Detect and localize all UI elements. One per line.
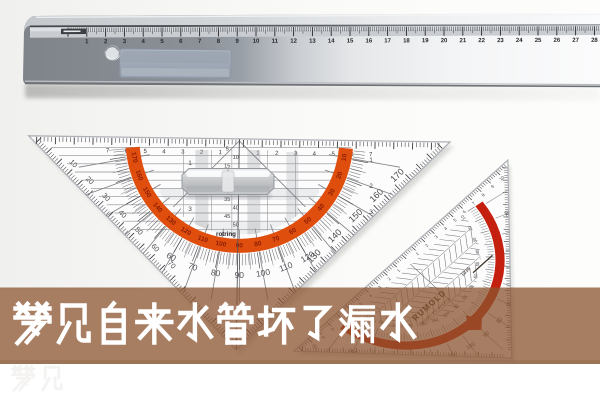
svg-text:3: 3 [188, 206, 192, 213]
svg-text:18: 18 [403, 38, 410, 44]
svg-text:50: 50 [233, 223, 239, 229]
svg-text:45: 45 [224, 214, 230, 220]
svg-text:rotring: rotring [216, 231, 236, 238]
svg-text:90: 90 [235, 270, 245, 280]
svg-text:24: 24 [516, 38, 523, 44]
svg-text:26: 26 [553, 38, 560, 44]
svg-text:3: 3 [369, 209, 373, 216]
svg-text:2: 2 [369, 183, 373, 190]
svg-text:12: 12 [290, 39, 297, 45]
svg-text:17: 17 [384, 38, 391, 44]
svg-text:23: 23 [497, 38, 504, 44]
svg-text:1: 1 [369, 157, 373, 164]
svg-text:11: 11 [272, 39, 279, 45]
svg-text:90: 90 [236, 242, 244, 249]
svg-text:40: 40 [474, 249, 480, 254]
svg-text:22: 22 [478, 38, 485, 44]
svg-text:40: 40 [233, 206, 239, 212]
svg-text:19: 19 [422, 38, 429, 44]
svg-text:1: 1 [188, 160, 192, 167]
svg-text:20: 20 [441, 38, 448, 44]
svg-text:14: 14 [328, 39, 335, 45]
svg-text:21: 21 [459, 38, 466, 44]
svg-text:5: 5 [226, 147, 229, 153]
svg-text:15: 15 [347, 38, 354, 44]
svg-text:10: 10 [253, 39, 260, 45]
svg-text:28: 28 [591, 38, 598, 44]
svg-text:16: 16 [365, 38, 372, 44]
svg-text:80: 80 [210, 267, 221, 279]
svg-text:13: 13 [309, 39, 316, 45]
svg-text:25: 25 [535, 38, 542, 44]
svg-text:10: 10 [233, 155, 239, 161]
svg-text:27: 27 [572, 38, 579, 44]
